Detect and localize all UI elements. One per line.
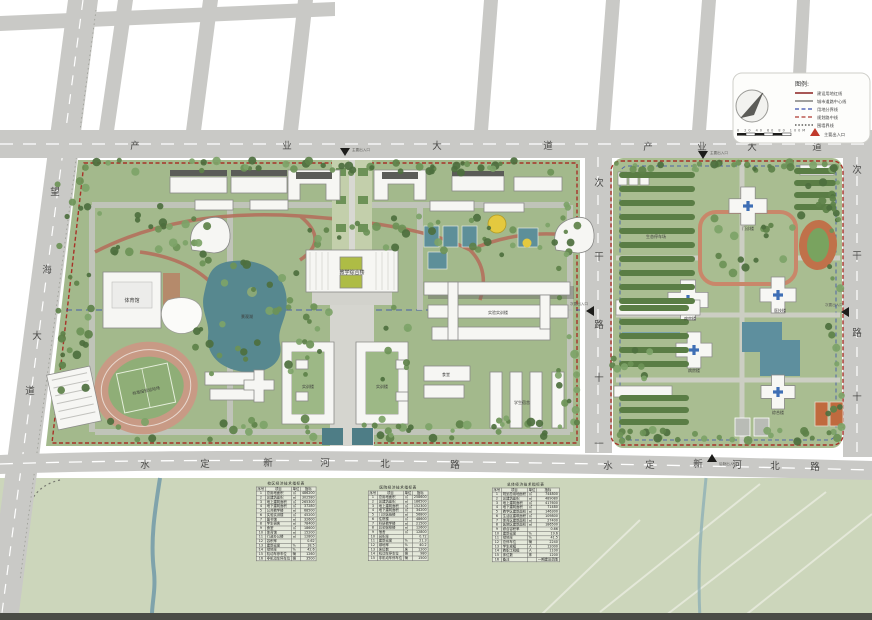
tree [337, 235, 342, 240]
indicator-table: 序号项目单位指标1总用地面积㎡2586002总建筑面积㎡1865003地上建筑面… [368, 491, 428, 561]
blue-cross-icon [776, 387, 779, 397]
tree [556, 266, 561, 271]
tree [251, 287, 256, 292]
table-cell: 1500 [413, 556, 428, 560]
tree-row [619, 333, 689, 339]
tree [230, 262, 237, 269]
svg-text:新: 新 [693, 458, 703, 470]
tree [82, 184, 90, 192]
tree [68, 275, 73, 280]
tree [787, 163, 795, 171]
tree [125, 248, 134, 257]
tree [714, 225, 723, 234]
svg-text:业: 业 [282, 141, 292, 152]
tree [545, 223, 550, 228]
tree-row [619, 298, 695, 304]
tree [469, 218, 474, 223]
tree [810, 436, 815, 441]
tree-row [619, 319, 689, 325]
tree [183, 240, 189, 246]
tree [547, 169, 554, 176]
tree [837, 404, 843, 410]
tree [272, 308, 279, 315]
tree [349, 166, 356, 173]
tree [537, 245, 542, 250]
svg-text:教学综合楼: 教学综合楼 [339, 269, 364, 276]
tree [430, 164, 435, 169]
tree [254, 339, 261, 346]
dorm-slab-vert [552, 372, 564, 428]
tree [82, 164, 89, 171]
tree [362, 423, 367, 428]
tree [573, 387, 580, 394]
tree [282, 161, 289, 168]
tree [79, 340, 85, 346]
tree [69, 199, 76, 206]
svg-text:大: 大 [432, 140, 442, 152]
tree [729, 269, 738, 278]
tree [416, 214, 422, 220]
table-cell: 15 [368, 556, 377, 560]
tree [836, 284, 844, 292]
tree-row [619, 305, 689, 311]
gate-pool [322, 428, 343, 445]
tree [56, 308, 62, 314]
tree [428, 227, 436, 235]
tree [402, 229, 410, 237]
tree [536, 420, 543, 427]
tree [73, 351, 82, 360]
court-teal [428, 252, 447, 269]
tree [305, 355, 310, 360]
tree-row [619, 256, 695, 262]
table-cell: 一期建设范围 [537, 558, 560, 562]
drawing-border-bottom [0, 613, 872, 620]
tree [473, 214, 481, 222]
tree [85, 314, 92, 321]
tree [60, 353, 65, 358]
tree [484, 238, 492, 246]
tree [764, 233, 769, 238]
blue-cross-icon [776, 290, 779, 300]
tree [440, 246, 448, 254]
tree [729, 437, 735, 443]
tree [84, 203, 91, 210]
tree-row [619, 407, 689, 413]
tree [355, 221, 360, 226]
tree [777, 428, 782, 433]
svg-text:次: 次 [594, 177, 604, 189]
tree [641, 376, 647, 382]
tree [169, 238, 178, 247]
tree [372, 222, 381, 231]
svg-text:路: 路 [852, 327, 862, 339]
tree [456, 420, 464, 428]
tree [372, 423, 378, 429]
tree [793, 437, 801, 445]
svg-text:新: 新 [263, 457, 273, 469]
table-cell: 辆 [291, 557, 300, 561]
tree [752, 166, 757, 171]
tree [449, 435, 454, 440]
tree [802, 430, 809, 437]
tree [697, 161, 702, 166]
tree [572, 406, 580, 414]
tree [310, 303, 317, 310]
tree [647, 165, 654, 172]
tree [429, 169, 435, 175]
tree [503, 415, 509, 421]
table-title: 医院经济技术指标表 [368, 485, 428, 490]
tree [625, 435, 631, 441]
tree [838, 392, 844, 398]
tree [627, 429, 633, 435]
dorm-slab [514, 177, 562, 191]
tree [835, 180, 840, 185]
blue-cross-icon [746, 201, 749, 211]
svg-text:食堂: 食堂 [442, 371, 450, 377]
tree [429, 434, 438, 443]
tree [660, 428, 666, 434]
tree [380, 377, 385, 382]
table-row: 16备注一期建设范围 [492, 558, 559, 562]
tree [730, 232, 739, 241]
svg-text:水: 水 [140, 459, 150, 471]
tree [235, 346, 241, 352]
tree [527, 418, 536, 427]
tree-row [619, 186, 695, 192]
e-complex-bar [424, 282, 570, 295]
svg-text:十: 十 [852, 391, 862, 403]
tree-row [619, 347, 689, 353]
tree [829, 228, 834, 233]
tree [256, 165, 262, 171]
tree [199, 168, 204, 173]
table-title: 总体经济技术指标表 [492, 482, 559, 487]
tree [457, 170, 462, 175]
tree-row [619, 270, 695, 276]
svg-text:实训楼: 实训楼 [302, 383, 314, 389]
table-cell: 16 [492, 558, 501, 562]
tree [611, 356, 617, 362]
tree [692, 431, 698, 437]
svg-text:主要出入口: 主要出入口 [352, 147, 370, 152]
tree [619, 438, 625, 444]
tree [640, 430, 647, 437]
tree [809, 161, 817, 169]
tree [84, 330, 93, 339]
tree [715, 253, 721, 259]
tree-row [619, 214, 695, 220]
tree [157, 203, 163, 209]
tree [403, 359, 410, 366]
tree [309, 433, 317, 441]
tree [287, 297, 294, 304]
svg-text:后勤出入口: 后勤出入口 [719, 461, 737, 466]
tree [229, 426, 238, 435]
svg-text:实验实训楼: 实验实训楼 [488, 309, 508, 315]
tree [490, 166, 496, 172]
svg-text:建设用地红线: 建设用地红线 [817, 90, 843, 97]
svg-text:病房楼: 病房楼 [688, 367, 700, 373]
tree [498, 162, 502, 166]
tree [491, 424, 497, 430]
tree [305, 430, 310, 435]
tree [349, 224, 355, 230]
tree-row [619, 172, 695, 178]
table-title: 校区经济技术指标表 [256, 481, 316, 486]
tree [391, 305, 397, 311]
pond [760, 340, 800, 376]
svg-text:门诊楼: 门诊楼 [742, 225, 754, 231]
tree [384, 347, 392, 355]
tree-row [619, 200, 695, 206]
tree [181, 220, 189, 228]
tree [830, 276, 834, 280]
tree [828, 331, 835, 338]
tree [56, 243, 62, 249]
tree [398, 168, 404, 174]
tree [201, 159, 207, 165]
tree [301, 415, 310, 424]
svg-text:景观湖: 景观湖 [241, 313, 253, 319]
tree [632, 347, 639, 354]
tree [148, 434, 156, 442]
tree [240, 348, 247, 355]
svg-text:北: 北 [770, 461, 780, 472]
tree [738, 256, 744, 262]
tree [838, 423, 846, 431]
tree [391, 244, 399, 252]
tree [199, 327, 204, 332]
tree [155, 245, 163, 253]
svg-text:产: 产 [643, 141, 653, 153]
tree [293, 270, 299, 276]
tree [260, 421, 268, 429]
tree [826, 205, 832, 211]
tree [741, 263, 749, 271]
tree [573, 371, 580, 378]
tree [555, 372, 562, 379]
tree [212, 157, 220, 165]
tree [833, 434, 841, 442]
tree [464, 161, 470, 167]
svg-text:路: 路 [810, 461, 820, 473]
tree [768, 223, 773, 228]
tree [825, 323, 832, 330]
tree-row [619, 284, 695, 290]
svg-text:水: 水 [603, 460, 613, 472]
tree [463, 421, 472, 430]
tree [217, 353, 223, 359]
table-cell: 非机动车停车位 [266, 557, 292, 561]
tree [836, 217, 841, 222]
tree [315, 326, 321, 332]
tree [155, 226, 162, 233]
svg-text:大: 大 [32, 330, 42, 342]
tree [207, 437, 213, 443]
svg-text:北: 北 [380, 459, 390, 470]
tree [195, 239, 203, 247]
tree [60, 331, 65, 336]
tree [78, 206, 83, 211]
tree-row [619, 419, 689, 425]
svg-text:体育馆: 体育馆 [124, 297, 139, 304]
tree [248, 157, 256, 165]
indicator-table-3: 总体经济技术指标表序号项目单位指标1规划总用地面积㎡7448002总建筑面积㎡4… [492, 482, 559, 562]
svg-text:主要出入口: 主要出入口 [710, 150, 728, 155]
svg-text:道: 道 [25, 385, 35, 397]
tree [510, 243, 516, 249]
tree [657, 162, 664, 169]
tree [148, 224, 153, 229]
indicator-table-1: 校区经济技术指标表序号项目单位指标1总用地面积㎡4862002总建筑面积㎡302… [256, 481, 316, 561]
tree [324, 227, 330, 233]
tree [245, 428, 253, 436]
svg-text:用地分界线: 用地分界线 [817, 106, 839, 113]
tree [392, 223, 399, 230]
tree [379, 416, 386, 423]
tree [166, 223, 173, 230]
svg-text:次要出入口: 次要出入口 [825, 302, 843, 307]
tree [141, 418, 149, 426]
svg-text:河: 河 [320, 457, 330, 469]
tree [556, 382, 563, 389]
tree [496, 429, 502, 435]
tree [307, 228, 312, 233]
tree [499, 252, 504, 257]
tree [110, 247, 118, 255]
blue-cross-icon [692, 345, 695, 355]
tree [567, 399, 572, 404]
tree [617, 432, 624, 439]
tree [325, 308, 333, 316]
table-cell: 辆 [403, 556, 412, 560]
svg-text:次: 次 [852, 164, 862, 176]
tree [558, 424, 563, 429]
tree [391, 215, 397, 221]
tree [542, 430, 548, 436]
tree [191, 216, 196, 221]
tree [653, 434, 662, 443]
tree [567, 239, 575, 247]
svg-text:路: 路 [594, 319, 604, 331]
scale-numbers: 0 20 40 60 80 100M [737, 129, 807, 133]
tree [408, 424, 414, 430]
tree [818, 197, 826, 205]
tree [159, 218, 167, 226]
svg-text:十: 十 [594, 372, 604, 384]
tree [105, 160, 111, 166]
tree [646, 348, 653, 355]
tree [284, 360, 293, 369]
tree [314, 235, 322, 243]
indicator-table: 序号项目单位指标1总用地面积㎡4862002总建筑面积㎡3025803地上建筑面… [256, 487, 316, 561]
svg-text:道: 道 [543, 140, 553, 152]
tree [638, 363, 645, 370]
tree [834, 361, 839, 366]
tree [206, 340, 214, 348]
svg-text:路: 路 [450, 459, 460, 471]
tree [675, 437, 681, 443]
tree [248, 417, 255, 424]
master-plan-drawing: 产 业 大 道 产 业 大 道 水 定 新 河 北 路 水 定 新 河 北 路 … [0, 0, 872, 620]
tree [711, 214, 719, 222]
tree [330, 167, 336, 173]
svg-text:次要出入口: 次要出入口 [570, 301, 588, 306]
tree [240, 260, 246, 266]
svg-text:干: 干 [594, 252, 604, 263]
tree [789, 224, 796, 231]
tree [67, 347, 73, 353]
tree [830, 406, 837, 413]
table-row: 15非机动车停车位辆1500 [368, 556, 428, 560]
tree [243, 164, 249, 170]
tree [701, 435, 707, 441]
tree [628, 361, 634, 367]
tree [827, 264, 832, 269]
tree [717, 435, 722, 440]
tree [220, 419, 228, 427]
farmland-area [0, 478, 872, 620]
tree [753, 258, 758, 263]
tree [564, 252, 570, 258]
tree [286, 304, 292, 310]
tree [638, 166, 646, 174]
tree [241, 424, 246, 429]
tree [832, 344, 840, 352]
tree [830, 195, 836, 201]
tree [82, 384, 90, 392]
tree [338, 163, 345, 170]
tree [614, 161, 619, 166]
tree [745, 161, 750, 166]
tree [469, 243, 477, 251]
svg-text:定: 定 [645, 459, 655, 471]
tree [306, 340, 314, 348]
table-row: 16非机动车停车位辆3500 [256, 557, 316, 561]
gate-pool [352, 428, 373, 445]
tree [692, 167, 697, 172]
court-teal [443, 226, 458, 247]
tree [117, 158, 122, 163]
svg-text:主要出入口: 主要出入口 [824, 131, 845, 138]
tree [317, 349, 322, 354]
yellow-plaza-feature [488, 215, 506, 233]
tree [221, 279, 228, 286]
tree [321, 163, 326, 168]
tree-row [619, 395, 689, 401]
tree [487, 226, 491, 230]
tree [87, 273, 92, 278]
court-gray [735, 418, 750, 436]
tree [92, 158, 101, 167]
svg-text:生态停车场: 生态停车场 [646, 233, 666, 239]
svg-text:学生宿舍: 学生宿舍 [514, 399, 530, 405]
svg-text:干: 干 [852, 251, 862, 262]
tree [205, 257, 212, 264]
tree [203, 222, 211, 230]
table-cell: 备注 [502, 558, 528, 562]
tree [97, 211, 102, 216]
tree [797, 211, 805, 219]
tree [436, 220, 441, 225]
tree [460, 161, 465, 166]
tree [87, 305, 95, 313]
tree [57, 386, 65, 394]
svg-text:一: 一 [594, 439, 604, 450]
tree [192, 344, 199, 351]
